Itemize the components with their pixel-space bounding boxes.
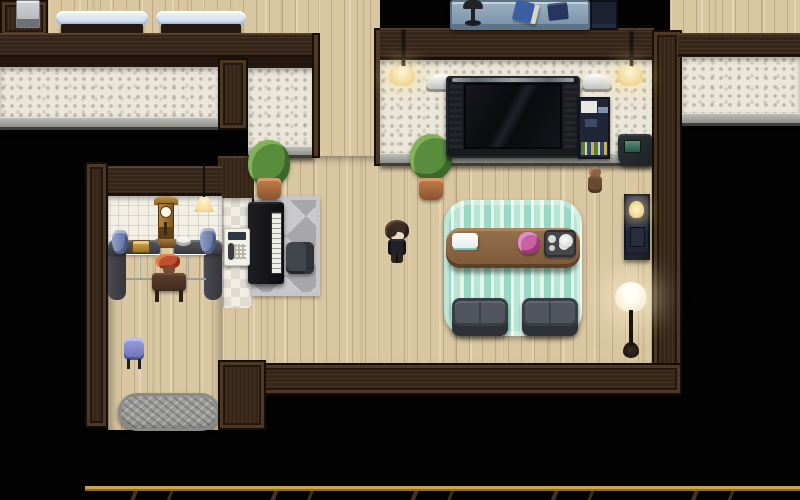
appliance[interactable]	[16, 0, 40, 28]
golden-box[interactable]	[132, 240, 150, 253]
game-viewport[interactable]	[0, 0, 800, 500]
tv-speaker-left	[449, 84, 462, 148]
marble-corridor-floor[interactable]	[85, 486, 800, 500]
side-cabinet[interactable]	[624, 194, 650, 260]
pendant-lamp	[194, 164, 214, 214]
bookshelf[interactable]	[578, 97, 610, 159]
upright-piano[interactable]	[248, 202, 284, 284]
ledge-left-room	[0, 117, 218, 130]
blue-stool[interactable]	[124, 338, 144, 370]
piano-chair[interactable]	[286, 242, 314, 274]
pink-flowers	[518, 232, 540, 254]
desk-lamp	[460, 0, 486, 28]
widescreen-tv[interactable]	[446, 76, 580, 158]
bench-bed-left[interactable]	[56, 11, 148, 35]
counter-left-arm	[108, 250, 126, 300]
floor-lamp-base	[623, 342, 639, 358]
corner-desk[interactable]	[618, 134, 652, 166]
wall-edge-hallway-left	[312, 33, 320, 158]
dark-cabinet[interactable]	[590, 0, 618, 30]
cake-plate[interactable]	[452, 233, 478, 248]
wall-right-vertical	[652, 30, 682, 395]
navy-book[interactable]	[547, 2, 569, 21]
tea-tray[interactable]	[544, 230, 576, 257]
flower-side-table[interactable]	[150, 254, 188, 306]
blue-vase-left	[112, 230, 128, 254]
floor-lamp[interactable]	[612, 282, 650, 362]
potted-plant-corner	[248, 140, 290, 200]
phone-keypad	[234, 244, 246, 259]
bench-bed-right[interactable]	[156, 11, 246, 35]
plush-doll[interactable]	[586, 167, 604, 195]
wallpaper-left-room	[0, 67, 218, 117]
floor-top-right[interactable]	[670, 0, 800, 33]
wall-band-upper	[0, 33, 320, 58]
side-table-top	[152, 273, 186, 291]
shaggy-doormat	[118, 393, 220, 431]
tv-speaker-right	[564, 84, 577, 148]
wall-sconce-right	[582, 74, 612, 92]
side-table-legs	[155, 290, 183, 302]
player-character	[383, 219, 411, 265]
hanging-wall-lamp-right	[616, 32, 644, 86]
sofa-right[interactable]	[522, 298, 578, 336]
sofa-left[interactable]	[452, 298, 508, 336]
wall-frame-left-room-right	[218, 58, 248, 130]
character-body	[388, 239, 406, 255]
wall-band-top-right-room	[678, 33, 800, 57]
blue-vase-right	[200, 228, 216, 254]
wall-left-vertical	[85, 162, 108, 428]
character-legs	[391, 254, 403, 263]
white-bowl	[176, 237, 191, 246]
wall-phone[interactable]	[224, 228, 250, 266]
wall-band-tv-room	[380, 28, 654, 60]
wall-band-bottom	[222, 363, 682, 395]
floor-top-hallway[interactable]	[318, 0, 380, 163]
wall-corner-hallway	[218, 360, 266, 430]
clock-face	[160, 206, 172, 218]
hanging-wall-lamp-left	[388, 30, 416, 86]
wallpaper-painting-wall	[248, 68, 314, 146]
wallpaper-top-right-room	[682, 57, 800, 113]
ledge-top-right-room	[682, 113, 800, 126]
counter-right-arm	[204, 250, 222, 300]
